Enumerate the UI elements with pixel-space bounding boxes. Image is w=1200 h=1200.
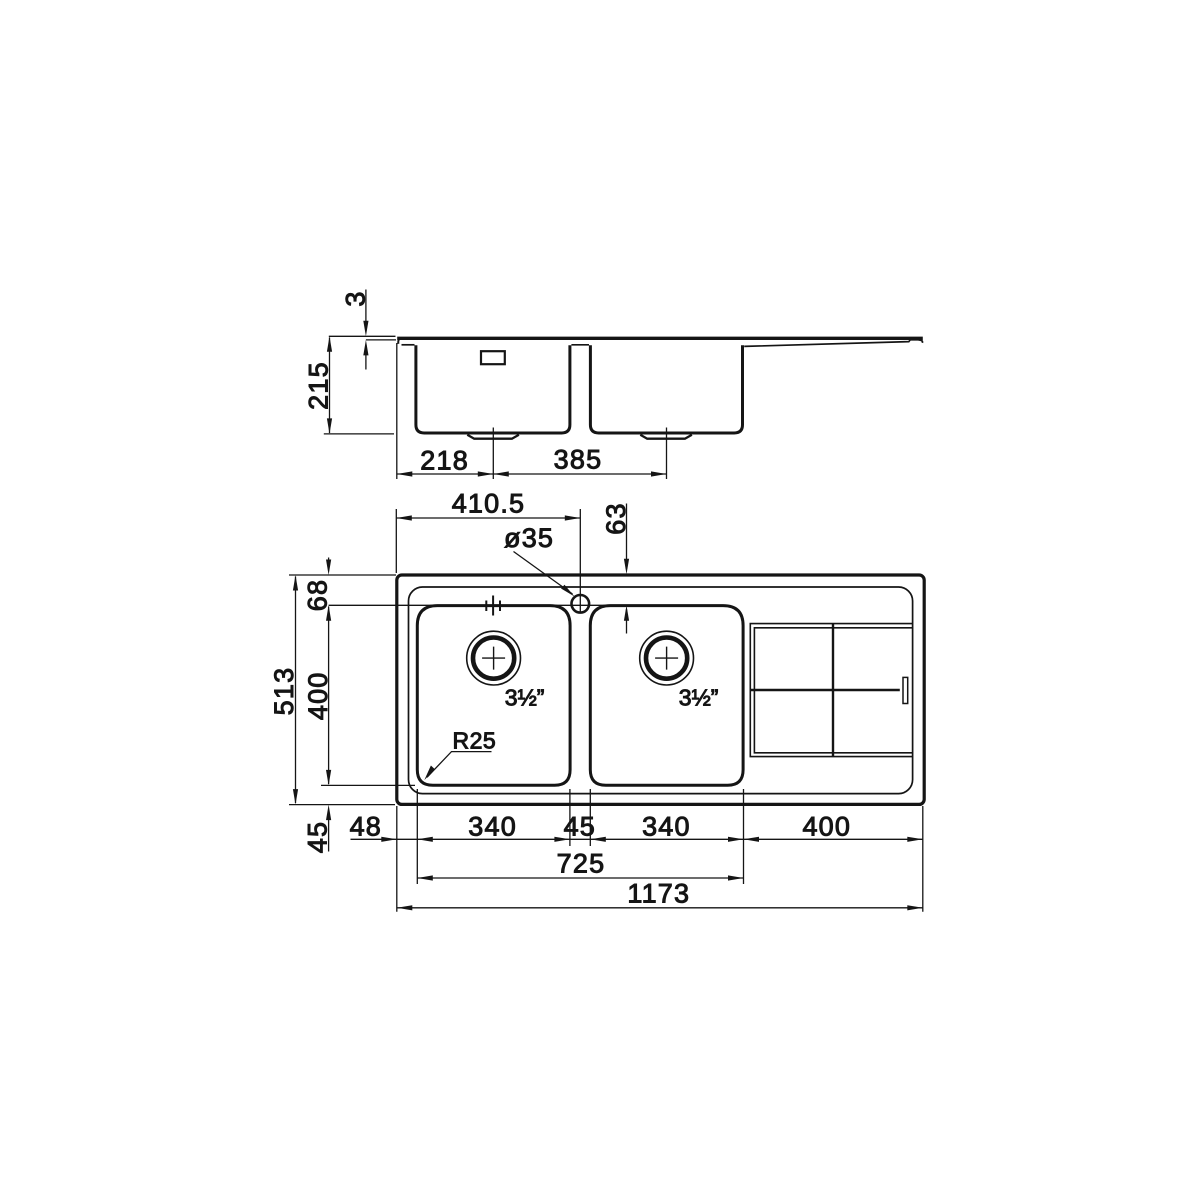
svg-text:63: 63 <box>601 502 631 534</box>
svg-text:725: 725 <box>557 849 606 879</box>
svg-text:340: 340 <box>468 812 517 842</box>
svg-text:3: 3 <box>341 290 371 306</box>
svg-text:215: 215 <box>304 361 334 410</box>
svg-text:3½”: 3½” <box>505 685 545 711</box>
svg-text:ø35: ø35 <box>504 523 554 553</box>
svg-text:410.5: 410.5 <box>452 489 526 519</box>
svg-text:400: 400 <box>802 812 851 842</box>
svg-text:400: 400 <box>303 671 333 720</box>
svg-text:513: 513 <box>269 667 299 716</box>
svg-text:218: 218 <box>420 446 469 476</box>
svg-text:48: 48 <box>350 812 382 842</box>
svg-text:45: 45 <box>564 812 596 842</box>
svg-text:45: 45 <box>303 821 333 853</box>
svg-text:1173: 1173 <box>627 879 690 909</box>
svg-text:3½”: 3½” <box>679 685 719 711</box>
svg-text:340: 340 <box>642 812 691 842</box>
svg-text:R25: R25 <box>453 728 497 754</box>
svg-text:385: 385 <box>554 445 603 475</box>
svg-text:68: 68 <box>303 579 333 611</box>
